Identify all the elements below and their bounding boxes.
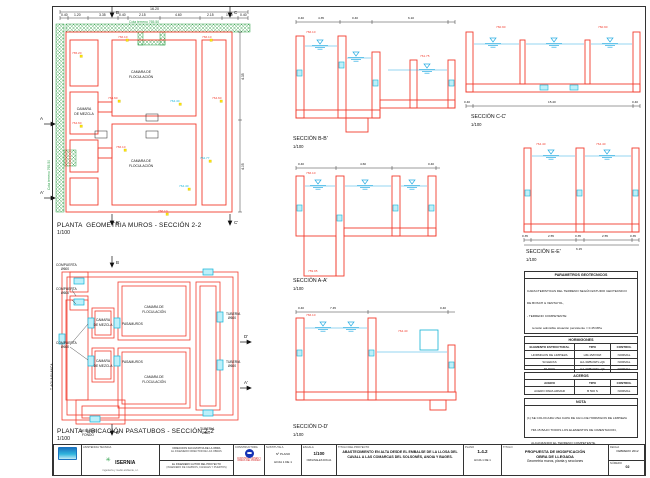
dd-pasatubos bbox=[297, 350, 454, 368]
marker-label: A' bbox=[40, 190, 44, 195]
geotech-parameters-box: PARAMETROS GEOTECNICOS CARACTERISTICAS D… bbox=[524, 271, 638, 334]
direccion-row1: DIRECCION FACULTATIVA DE LA OBRA EL INGE… bbox=[160, 445, 233, 461]
room-label: CAMARA DE bbox=[144, 375, 164, 379]
direccion-cell: DIRECCION FACULTATIVA DE LA OBRA EL INGE… bbox=[159, 445, 233, 475]
elev-label: 764.40 bbox=[536, 142, 546, 146]
dd-walls bbox=[296, 318, 456, 410]
dd-equipment-box bbox=[420, 330, 438, 350]
elev-label: 764.40 bbox=[179, 184, 189, 188]
dim-label: 4.60 bbox=[175, 13, 182, 17]
section-marker-d2 bbox=[240, 340, 251, 344]
section-bb-title: SECCIÓN B-B' bbox=[293, 137, 328, 143]
bb-elevs: 766.10 761.75 bbox=[306, 30, 430, 58]
dim-label: 3.35 bbox=[99, 13, 106, 17]
compuerta-label: Ø600 bbox=[61, 291, 69, 295]
escala-value: 1/100 bbox=[302, 451, 336, 456]
table-cell: NORMAL bbox=[611, 351, 637, 358]
steel-table-grid: ACERO TIPO CONTROL ACERO PARA ARMAR B 50… bbox=[525, 380, 637, 395]
room-label: CAMARA bbox=[77, 107, 92, 111]
dim-label: 0.40 bbox=[119, 13, 126, 17]
room-label: CAMARA DE bbox=[131, 70, 152, 74]
plano-hoja: HOJA 1 DE 1 bbox=[464, 458, 501, 462]
dd-elevs: 766.10 764.40 bbox=[306, 313, 408, 333]
asistencia-cell: ASISTENCIA TECNICA ✳ ISERNIA ingeniería … bbox=[81, 445, 159, 475]
dim-label: 2.55 bbox=[548, 234, 554, 238]
section-aa-title: SECCIÓN A-A' bbox=[293, 279, 327, 285]
dim-label: 0.40 bbox=[61, 13, 68, 17]
cc-dims: 0.40 15.40 0.40 bbox=[464, 100, 638, 104]
dim-label: 4.35 bbox=[318, 16, 324, 20]
dim-label: 15.40 bbox=[548, 100, 556, 104]
section-aa-scale: 1/100 bbox=[293, 287, 303, 292]
dim-total: 6.15 bbox=[576, 247, 582, 251]
elev-label: 760.90 bbox=[598, 25, 608, 29]
elev-label: 764.40 bbox=[596, 142, 606, 146]
bb-dims: 0.40 4.35 0.40 6.10 bbox=[298, 16, 414, 20]
asistencia-sub: ingeniería y medio ambiente, s.l. bbox=[82, 469, 159, 472]
dim-label: 2.15 bbox=[207, 13, 214, 17]
cota-terreno-left: Cota terreno 765.50 bbox=[47, 160, 51, 190]
dim-label: 0.40 bbox=[298, 306, 304, 310]
dim-label: 6.10 bbox=[408, 16, 414, 20]
elev-label: 766.10 bbox=[306, 313, 316, 317]
fecha-numero-cell: FECHA FEBRERO 2012 NÚMERO 02 bbox=[608, 445, 646, 475]
ee-pasatubos bbox=[525, 190, 638, 196]
tuberia-label: Ø600 bbox=[228, 364, 236, 368]
ee-dimline bbox=[524, 238, 639, 245]
plan1-detail-boxes bbox=[95, 114, 158, 138]
table-cell: HA-30/B/20/IV+Qb bbox=[575, 359, 611, 366]
section-marker-c2 bbox=[228, 214, 232, 225]
water-symbol bbox=[343, 322, 359, 331]
room-label: DE MEZCLA bbox=[94, 364, 114, 368]
water-symbol bbox=[310, 180, 326, 189]
table-cell: NORMAL bbox=[611, 387, 637, 394]
proyecto-cell: TITULO DEL PROYECTO ABASTECIMIENTO EN AL… bbox=[336, 445, 463, 475]
water-symbol bbox=[348, 52, 364, 61]
plan-geometria-muros: B C B' C' A A' Cota terreno 765.50 Cota … bbox=[40, 6, 250, 225]
sustituye-cell: SUSTITUYE A Nº PLANO HOJA 1 DE 1 bbox=[264, 445, 301, 475]
dim-label: 0.40 bbox=[464, 100, 470, 104]
water-symbol bbox=[546, 38, 562, 47]
room-label: FLOCULACIÓN bbox=[142, 309, 166, 314]
water-symbol bbox=[543, 150, 559, 159]
dim-label: 4.35 bbox=[241, 73, 245, 80]
section-ee-scale: 1/100 bbox=[526, 258, 536, 263]
direccion-line: EL INGENIERO DIRECTOR DE LAS OBRAS bbox=[160, 450, 233, 453]
compuerta-label: Ø600 bbox=[61, 267, 69, 271]
dd-dims: 0.40 7.45 0.40 bbox=[298, 306, 446, 310]
escala-header: ESCALA bbox=[302, 445, 336, 449]
direccion-line: (INGENIERO DE CAMINOS, CANALES Y PUERTOS… bbox=[160, 466, 233, 469]
client-logo-cell bbox=[54, 445, 81, 475]
section-bb-scale: 1/100 bbox=[293, 145, 303, 150]
constructora-name: OBRAS DEL PIRINEO bbox=[234, 460, 264, 462]
asistencia-header: ASISTENCIA TECNICA bbox=[82, 445, 159, 449]
concrete-table-grid: ELEMENTO ESTRUCTURAL TIPO CONTROL HORMIG… bbox=[525, 344, 637, 374]
title-block: ASISTENCIA TECNICA ✳ ISERNIA ingeniería … bbox=[53, 444, 645, 476]
table-cell: SOLERAS bbox=[525, 359, 575, 366]
isernia-logo-icon: ✳ bbox=[106, 457, 111, 463]
section-cc-scale: 1/100 bbox=[471, 123, 481, 128]
elev-label: 766.10 bbox=[118, 35, 128, 39]
asistencia-name: ISERNIA bbox=[115, 460, 135, 466]
dim-label: 0.40 bbox=[240, 13, 247, 17]
dim-label: 0.35 bbox=[575, 234, 581, 238]
note-line: (1) SE COLOCARA UNA CAPA DE 10cm DE HORM… bbox=[527, 416, 635, 420]
steel-table-title: ACEROS bbox=[525, 373, 637, 380]
marker-label: A' bbox=[244, 380, 248, 385]
constructora-logo bbox=[245, 449, 254, 458]
plan1-elevations-cyan: 764.40 762.77 764.40 bbox=[170, 99, 210, 188]
dim-label: 4.05 bbox=[241, 163, 245, 170]
dim-label: 1.20 bbox=[74, 13, 81, 17]
col-header: CONTROL bbox=[611, 344, 637, 351]
geotech-title: PARAMETROS GEOTECNICOS bbox=[525, 272, 637, 279]
plan1-scale: 1/100 bbox=[57, 231, 70, 237]
col-header: TIPO bbox=[575, 344, 611, 351]
water-symbol bbox=[312, 40, 328, 49]
geotech-line: DE BOSCH & VENTAYOL, bbox=[527, 301, 635, 305]
table-cell: NORMAL bbox=[611, 359, 637, 366]
elev-label: 760.90 bbox=[496, 25, 506, 29]
seccion-aa: 0.40 4.60 0.40 766.10 759.95 bbox=[296, 162, 440, 276]
marker-label: A bbox=[40, 116, 43, 121]
marker-label: C bbox=[234, 10, 238, 15]
ee-elevs: 764.40 764.40 bbox=[536, 142, 606, 146]
elev-label: 766.10 bbox=[158, 209, 168, 213]
note-line: HM-15 BAJO TODOS LOS ELEMENTOS DE CIMENT… bbox=[527, 428, 635, 432]
dim-label: 2.55 bbox=[602, 234, 608, 238]
dim-label: 0.40 bbox=[352, 16, 358, 20]
dim-label: 2.15 bbox=[139, 13, 146, 17]
marker-label: D' bbox=[244, 334, 248, 339]
note-title: NOTA bbox=[525, 399, 637, 406]
dim-label: 0.40 bbox=[428, 162, 434, 166]
compuerta-label: Ø600 bbox=[61, 345, 69, 349]
seccion-cc: 0.40 15.40 0.40 760.90 760.90 bbox=[464, 25, 640, 108]
cc-dimline bbox=[466, 104, 640, 108]
concrete-table-title: HORMIGONES bbox=[525, 337, 637, 344]
escala-sub: ORIGINALES DIN A1 bbox=[302, 459, 336, 462]
plano-cell: PLANO 1.4.2 HOJA 1 DE 1 bbox=[463, 445, 501, 475]
water-symbol bbox=[404, 180, 420, 189]
terrain-hatch bbox=[56, 24, 250, 212]
water-symbol bbox=[485, 38, 501, 47]
section-marker-b bbox=[110, 6, 114, 17]
elev-label: 764.40 bbox=[398, 329, 408, 333]
sustituye-header: SUSTITUYE A bbox=[265, 445, 301, 449]
sustituye-line: Nº PLANO bbox=[265, 452, 301, 456]
pasamuros-label: PASAMUROS bbox=[122, 360, 144, 364]
numero-row: NÚMERO 02 bbox=[609, 461, 646, 469]
room-label: CAMARA bbox=[96, 318, 111, 322]
sustituye-line: HOJA 1 DE 1 bbox=[265, 460, 301, 464]
plan1-walls bbox=[66, 32, 232, 212]
cota-terreno-top: Cota terreno 765.50 bbox=[129, 20, 159, 24]
room-label: CAMARA DE bbox=[131, 159, 152, 163]
concrete-table: HORMIGONES ELEMENTO ESTRUCTURAL TIPO CON… bbox=[524, 336, 638, 370]
room-label: DE MEZCLA bbox=[94, 323, 114, 327]
water-symbol bbox=[602, 38, 618, 47]
fecha-value: FEBRERO 2012 bbox=[609, 449, 646, 453]
dim-label: 0.35 bbox=[630, 234, 636, 238]
dim-label: 4.60 bbox=[360, 162, 366, 166]
section-ee-title: SECCIÓN E-E' bbox=[526, 250, 561, 256]
aa-pasatubos bbox=[297, 205, 434, 221]
aa-dimline bbox=[296, 166, 440, 170]
elev-label: 765.20 bbox=[72, 51, 82, 55]
water-symbol bbox=[357, 180, 373, 189]
seccion-dd: 0.40 7.45 0.40 766.10 764.40 bbox=[296, 306, 456, 410]
agua-blanca-label: T. AGUA BLANCA bbox=[50, 363, 54, 390]
elev-label: 766.10 bbox=[306, 171, 316, 175]
aa-dims: 0.40 4.60 0.40 bbox=[298, 162, 434, 166]
room-label: FLOCULACIÓN bbox=[142, 379, 166, 384]
cc-elevs: 760.90 760.90 bbox=[496, 25, 608, 29]
dim-label: 0.40 bbox=[298, 162, 304, 166]
col-header: ELEMENTO ESTRUCTURAL bbox=[525, 344, 575, 351]
level-dots bbox=[80, 39, 222, 215]
note-box: NOTA (1) SE COLOCARA UNA CAPA DE 10cm DE… bbox=[524, 398, 638, 438]
table-cell: ACERO PARA ARMAR bbox=[525, 387, 575, 394]
elev-label: 759.95 bbox=[308, 269, 318, 273]
section-marker-a2 bbox=[240, 386, 251, 390]
elev-label: 761.75 bbox=[420, 54, 430, 58]
tuberia-label: Ø600 bbox=[228, 316, 236, 320]
section-dd-scale: 1/100 bbox=[293, 433, 303, 438]
section-cc-title: SECCIÓN C-C' bbox=[471, 115, 506, 121]
plano-number: 1.4.2 bbox=[464, 449, 501, 454]
plan-ubicacion-pasatubos: B B' D' A' COMPUERTA Ø600 COMPUERTA Ø600… bbox=[50, 256, 251, 437]
bb-dimline bbox=[296, 20, 455, 24]
geotech-line: - TERRENO COMPETENTE: bbox=[527, 314, 635, 318]
col-header: TIPO bbox=[575, 380, 611, 387]
room-label: FLOCULACIÓN bbox=[129, 163, 154, 168]
dim-label: 0.40 bbox=[298, 16, 304, 20]
elev-label: 762.77 bbox=[200, 156, 210, 160]
dim-label: 7.45 bbox=[330, 306, 336, 310]
elev-label: 764.60 bbox=[72, 121, 82, 125]
water-symbol bbox=[419, 64, 435, 73]
dim-label: 0.35 bbox=[522, 234, 528, 238]
titulo-subtitle: Geometría muros, planta y secciones bbox=[502, 459, 608, 463]
dim-label: 0.40 bbox=[632, 100, 638, 104]
steel-table: ACEROS ACERO TIPO CONTROL ACERO PARA ARM… bbox=[524, 372, 638, 395]
dim-total: 16.20 bbox=[150, 7, 159, 11]
geotech-line: tensión admisible situación persistente … bbox=[527, 326, 635, 330]
elev-label: 764.60 bbox=[212, 96, 222, 100]
dd-dimline bbox=[296, 310, 455, 314]
table-cell: HM-15/P/20/I bbox=[575, 351, 611, 358]
dim-label: 0.40 bbox=[440, 306, 446, 310]
room-label: DE MEZCLA bbox=[74, 112, 94, 116]
plan2-walls bbox=[62, 272, 238, 424]
elev-label: 766.10 bbox=[202, 35, 212, 39]
plan2-texts: B B' D' A' COMPUERTA Ø600 COMPUERTA Ø600… bbox=[50, 260, 248, 437]
section-marker-b bbox=[110, 256, 114, 267]
constructora-cell: CONSTRUCTORA CONSTRUCCIONES Y OBRAS DEL … bbox=[233, 445, 264, 475]
table-cell: B 500 S bbox=[575, 387, 611, 394]
pasamuros-label: PASAMUROS bbox=[122, 322, 144, 326]
geotech-line: CARACTERISTICAS DEL TERRENO SEGÚN ESTUDI… bbox=[527, 289, 635, 293]
dim-label: 1.20 bbox=[226, 13, 233, 17]
seccion-ee: 0.35 2.55 0.35 2.55 0.35 6.15 764.40 764… bbox=[522, 142, 639, 251]
marker-label: B bbox=[116, 260, 119, 265]
section-dd-title: SECCIÓN D-D' bbox=[293, 425, 328, 431]
client-logo bbox=[58, 447, 77, 460]
direccion-row2: EL INGENIERO AUTOR DEL PROYECTO (INGENIE… bbox=[160, 461, 233, 469]
water-symbol bbox=[599, 150, 615, 159]
fecha-row: FECHA FEBRERO 2012 bbox=[609, 445, 646, 461]
section-marker-a2 bbox=[44, 196, 55, 200]
marker-label: C' bbox=[234, 220, 238, 225]
titulo-cell: TITULO PROPUESTA DE MODIFICACIÓN OBRA DE… bbox=[501, 445, 608, 475]
room-label: CAMARA bbox=[96, 359, 111, 363]
col-header: ACERO bbox=[525, 380, 575, 387]
room-label: CAMARA DE bbox=[144, 305, 164, 309]
water-symbol bbox=[315, 322, 331, 331]
elev-label: 766.10 bbox=[306, 30, 316, 34]
plan2-scale: 1/100 bbox=[57, 437, 70, 443]
seccion-bb: 0.40 4.35 0.40 6.10 766.10 761.75 bbox=[296, 16, 455, 132]
numero-value: 02 bbox=[609, 465, 646, 469]
elev-label: 766.10 bbox=[116, 145, 126, 149]
table-cell: HORMIGON DE LIMPIEZA bbox=[525, 351, 575, 358]
cc-pasatubos bbox=[540, 85, 578, 90]
plan1-title: PLANTA GEOMETRIA MUROS - SECCIÓN 2-2 bbox=[57, 222, 201, 229]
bb-pasatubos bbox=[297, 62, 454, 86]
elev-label: 764.60 bbox=[108, 96, 118, 100]
room-label: FLOCULACIÓN bbox=[129, 74, 154, 79]
aa-walls bbox=[296, 176, 436, 276]
drawing-sheet: B C B' C' A A' Cota terreno 765.50 Cota … bbox=[0, 0, 650, 478]
elev-label: 764.40 bbox=[170, 99, 180, 103]
section-marker-a bbox=[44, 122, 55, 126]
plan2-title: PLANTA UBICACIÓN PASATUBOS - SECCIÓN 2-2 bbox=[57, 428, 214, 435]
escala-cell: ESCALA 1/100 ORIGINALES DIN A1 bbox=[301, 445, 336, 475]
proyecto-title: ABASTECIMIENTO EN ALTA DESDE EL EMBALSE … bbox=[337, 449, 463, 460]
col-header: CONTROL bbox=[611, 380, 637, 387]
